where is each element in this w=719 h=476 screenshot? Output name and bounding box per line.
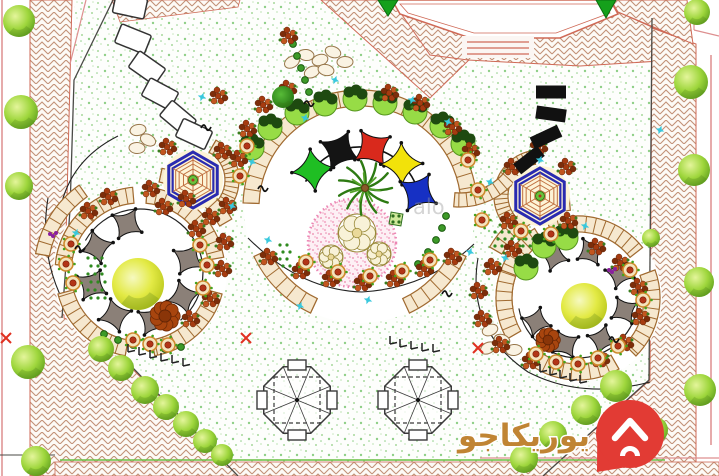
site-plan-drawing: alo يوريكاجو <box>0 0 719 476</box>
faint-watermark-text: alo <box>413 195 445 219</box>
brand-text: يوريكاجو <box>456 418 590 454</box>
building-entry-steps <box>462 36 534 58</box>
landscape-plan-canvas: alo يوريكاجو <box>0 0 719 476</box>
